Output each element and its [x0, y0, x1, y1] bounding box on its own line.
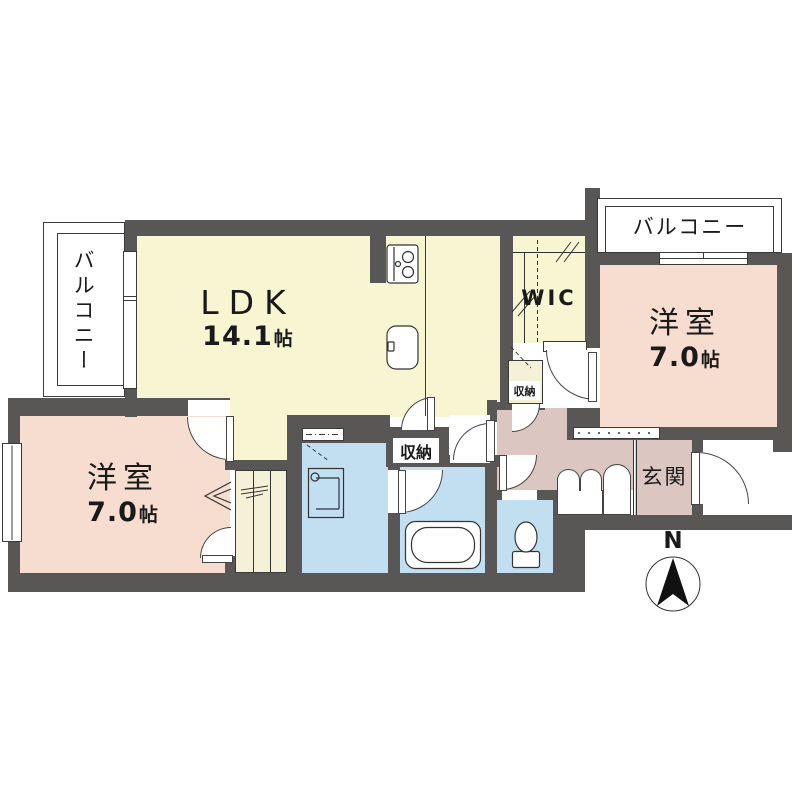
- sliding-closet-strip: [573, 427, 660, 439]
- wall: [777, 265, 792, 440]
- wall: [585, 515, 792, 530]
- genkan-label: 玄関: [637, 463, 692, 491]
- room-ldk-extension: [230, 416, 287, 462]
- cabinet-door-arc: [557, 469, 580, 491]
- entrance-door-arc: [697, 452, 749, 504]
- compass-n-text: N: [663, 528, 682, 554]
- wall: [125, 236, 137, 417]
- door-leaf: [588, 352, 597, 402]
- room-toilet: [497, 500, 553, 573]
- closet-shelf: [302, 428, 344, 441]
- bedroom-right-area-value: 7.0: [649, 342, 700, 373]
- storage-center-label: 収納: [393, 438, 439, 463]
- wall: [692, 504, 703, 515]
- shoe-cabinet: [603, 490, 631, 515]
- closet-bedroom-left: [235, 470, 287, 573]
- door-leaf: [398, 470, 406, 514]
- bedroom-right-name: 洋室: [649, 307, 721, 342]
- balcony-right-text: バルコニー: [633, 215, 748, 239]
- doorway: [188, 400, 230, 416]
- wall: [567, 515, 585, 592]
- genkan-text: 玄関: [642, 465, 688, 489]
- bedroom-right-area-unit: 帖: [701, 349, 721, 371]
- door-leaf: [486, 420, 495, 462]
- entrance-door-leaf: [691, 452, 700, 505]
- wall: [500, 220, 513, 343]
- storage-center-text: 収納: [400, 439, 432, 463]
- cabinet-door-arc: [580, 469, 602, 491]
- door-leaf: [499, 455, 507, 491]
- balcony-left-label: バルコニー: [60, 235, 106, 387]
- compass-icon: [646, 557, 700, 611]
- bedroom-left-label: 洋室 7.0帖: [38, 455, 208, 535]
- wall: [485, 467, 497, 573]
- wall: [125, 220, 600, 236]
- balcony-right-label: バルコニー: [605, 213, 775, 241]
- wall: [567, 408, 600, 427]
- ldk-area-unit: 帖: [274, 328, 294, 350]
- door-leaf: [226, 416, 234, 462]
- door-leaf: [202, 555, 233, 563]
- bedroom-left-area-unit: 帖: [139, 504, 159, 526]
- wall: [287, 428, 302, 573]
- wall: [370, 236, 386, 283]
- ldk-area-value: 14.1: [202, 321, 273, 352]
- ldk-label: LDK 14.1帖: [148, 278, 348, 358]
- wall: [773, 440, 792, 452]
- wall: [585, 253, 792, 265]
- wall: [585, 265, 600, 350]
- bedroom-left-area-value: 7.0: [87, 497, 138, 528]
- compass-label: N: [658, 528, 688, 554]
- wic-label: WIC: [513, 284, 585, 312]
- balcony-left-text: バルコニー: [71, 249, 95, 374]
- wall: [8, 398, 20, 592]
- ldk-name: LDK: [200, 284, 295, 322]
- wall: [8, 573, 567, 592]
- floor-plan: バルコニー LDK 14.1帖 洋室 7.0帖 洋室 7.0帖 バルコニー WI…: [0, 0, 800, 800]
- storage-hall-text: 収納: [514, 383, 536, 399]
- bedroom-left-name: 洋室: [87, 462, 159, 497]
- bedroom-right-label: 洋室 7.0帖: [600, 300, 770, 380]
- wall: [225, 460, 302, 470]
- room-washroom: [302, 441, 388, 573]
- shoe-cabinet: [557, 490, 603, 515]
- wic-text: WIC: [521, 286, 576, 310]
- wall: [692, 438, 703, 452]
- door-leaf: [427, 397, 435, 431]
- storage-hall-label: 収納: [509, 381, 540, 400]
- doorway: [502, 490, 537, 500]
- cabinet-door-arc: [603, 464, 631, 491]
